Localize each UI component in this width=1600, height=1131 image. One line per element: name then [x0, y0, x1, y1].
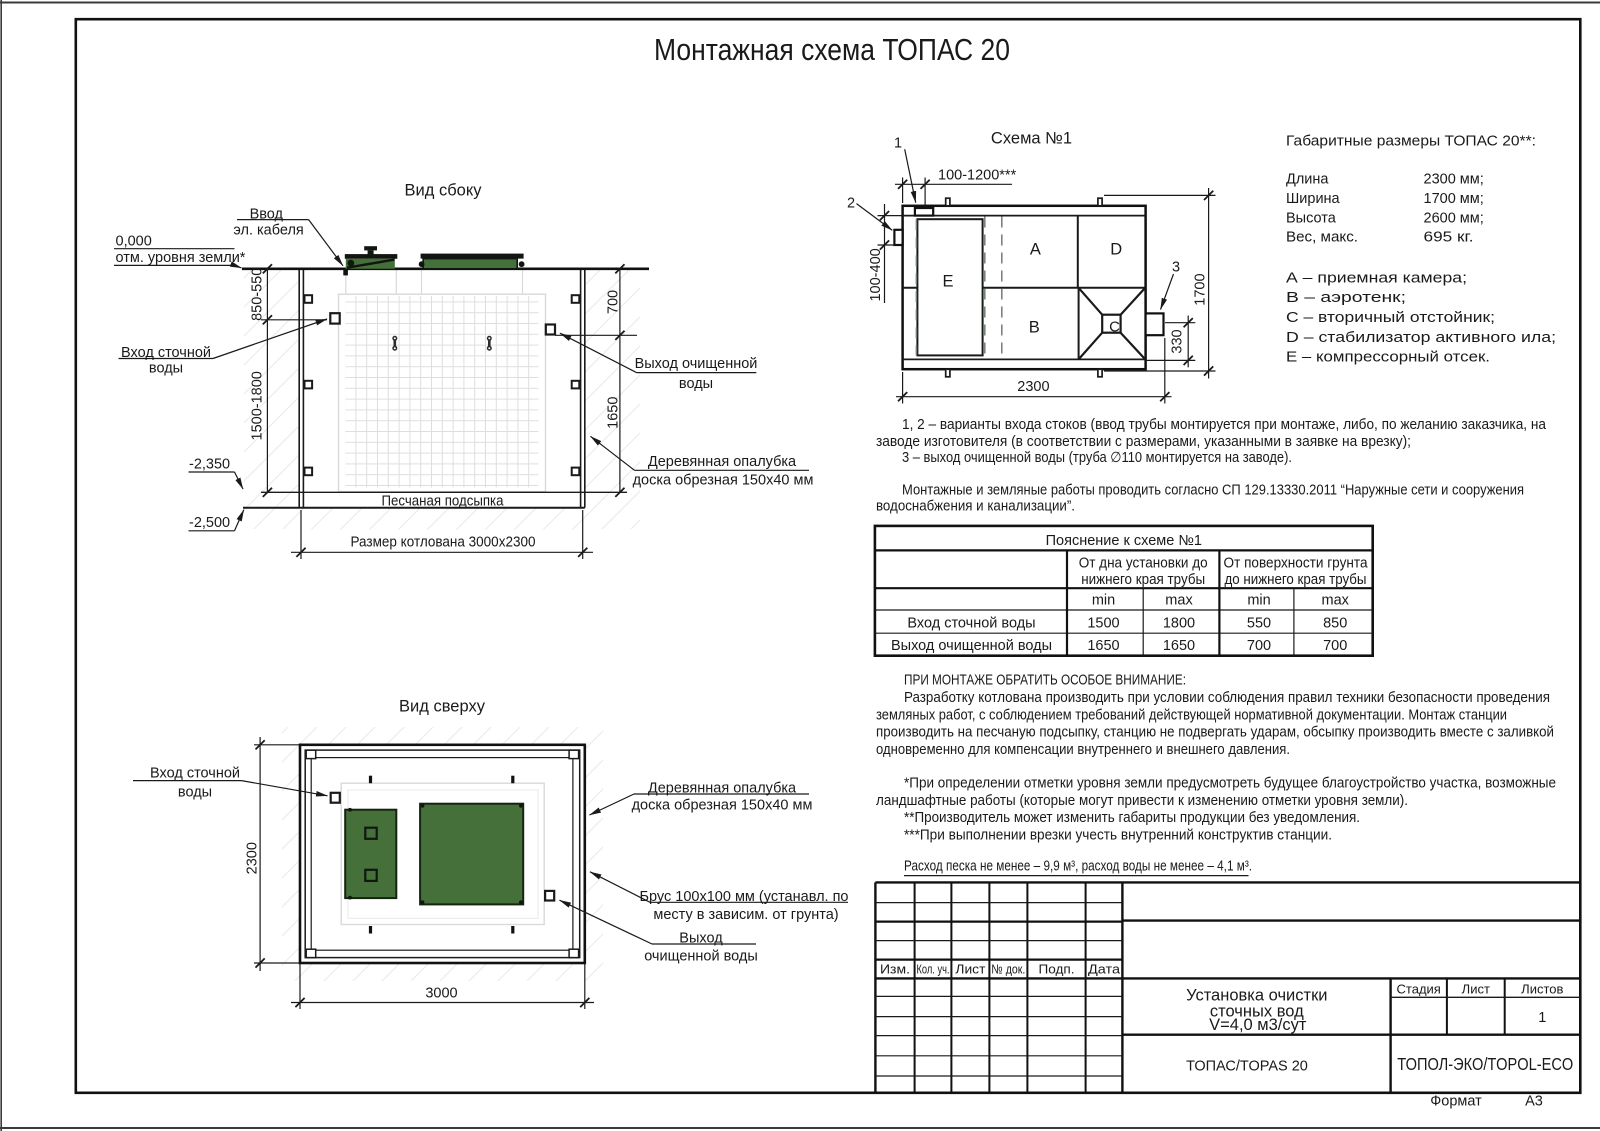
svg-text:2300: 2300: [1017, 379, 1049, 395]
svg-text:заводе изготовителя (в соответ: заводе изготовителя (в соответствии с ра…: [876, 434, 1411, 450]
svg-text:производить на песчаную подсып: производить на песчаную подсыпку, станци…: [876, 725, 1554, 741]
svg-text:2600 мм;: 2600 мм;: [1424, 210, 1484, 226]
svg-text:2300: 2300: [245, 842, 261, 874]
svg-text:850-550: 850-550: [250, 268, 266, 321]
svg-text:Высота: Высота: [1286, 210, 1337, 226]
svg-text:1500-1800: 1500-1800: [250, 371, 266, 440]
svg-text:Вид сверху: Вид сверху: [399, 698, 486, 716]
svg-text:Подп.: Подп.: [1039, 962, 1075, 977]
svg-text:Песчаная подсыпка: Песчаная подсыпка: [382, 493, 505, 509]
svg-text:Е – компрессорный отсек.: Е – компрессорный отсек.: [1286, 350, 1490, 366]
svg-text:3000: 3000: [425, 986, 457, 1002]
svg-text:Вход сточной воды: Вход сточной воды: [907, 616, 1035, 632]
svg-text:-2,500: -2,500: [189, 515, 230, 531]
svg-text:Размер котлована 3000х2300: Размер котлована 3000х2300: [351, 534, 536, 550]
svg-text:Деревянная опалубка: Деревянная опалубка: [648, 454, 797, 470]
svg-text:А3: А3: [1525, 1094, 1543, 1110]
svg-text:Листов: Листов: [1521, 981, 1563, 996]
svg-text:доска обрезная 150х40 мм: доска обрезная 150х40 мм: [633, 472, 814, 488]
svg-text:3 – выход очищенной воды (труб: 3 – выход очищенной воды (труба ∅110 мон…: [902, 450, 1292, 466]
svg-text:3: 3: [1172, 260, 1180, 276]
svg-text:min: min: [1092, 593, 1115, 609]
svg-text:до нижнего края трубы: до нижнего края трубы: [1225, 572, 1367, 588]
svg-text:воды: воды: [149, 361, 183, 377]
svg-text:От поверхности грунта: От поверхности грунта: [1224, 555, 1369, 571]
svg-text:ландшафтные работы (которые мо: ландшафтные работы (которые могут привес…: [876, 793, 1408, 809]
svg-text:Изм.: Изм.: [880, 962, 910, 977]
svg-text:*При определении отметки уровн: *При определении отметки уровня земли пр…: [904, 776, 1556, 792]
svg-text:ТОПАС/TOPAS 20: ТОПАС/TOPAS 20: [1186, 1059, 1308, 1075]
svg-text:Выход очищенной: Выход очищенной: [635, 356, 758, 372]
svg-text:**Производитель может изменить: **Производитель может изменить габариты …: [904, 810, 1360, 826]
svg-text:Габаритные размеры ТОПАС 20**:: Габаритные размеры ТОПАС 20**:: [1286, 133, 1536, 149]
svg-text:земляных работ, с соблюдением: земляных работ, с соблюдением требований…: [876, 707, 1507, 723]
svg-text:100-1200***: 100-1200***: [938, 168, 1017, 184]
svg-text:1: 1: [1538, 1010, 1546, 1026]
svg-text:B: B: [1029, 319, 1040, 337]
svg-text:C: C: [1109, 318, 1120, 335]
svg-text:Лист: Лист: [955, 962, 985, 977]
svg-text:От дна установки до: От дна установки до: [1079, 555, 1208, 571]
svg-text:1700: 1700: [1193, 273, 1209, 305]
svg-text:Длина: Длина: [1286, 171, 1329, 187]
svg-text:доска обрезная 150х40 мм: доска обрезная 150х40 мм: [632, 797, 813, 813]
svg-text:Схема №1: Схема №1: [991, 130, 1072, 148]
svg-text:месту в зависим. от грунта): месту в зависим. от грунта): [653, 907, 838, 923]
svg-text:Вход сточной: Вход сточной: [150, 766, 240, 782]
svg-text:воды: воды: [178, 785, 212, 801]
svg-text:-2,350: -2,350: [189, 456, 230, 472]
svg-text:отм. уровня земли*: отм. уровня земли*: [116, 250, 246, 266]
svg-text:С – вторичный отстойник;: С – вторичный отстойник;: [1286, 310, 1495, 326]
svg-text:1650: 1650: [1087, 638, 1119, 654]
svg-text:Монтажная схема ТОПАС 20: Монтажная схема ТОПАС 20: [654, 32, 1010, 67]
svg-text:A: A: [1030, 240, 1041, 258]
svg-text:водоснабжения и канализации”.: водоснабжения и канализации”.: [876, 499, 1075, 515]
svg-text:D: D: [1110, 240, 1122, 258]
svg-text:550: 550: [1247, 616, 1271, 632]
svg-text:№ док.: № док.: [991, 962, 1025, 977]
svg-text:D – стабилизатор активного ила: D – стабилизатор активного ила;: [1286, 330, 1556, 346]
svg-text:воды: воды: [679, 376, 713, 392]
svg-text:одновременно для компенсации в: одновременно для компенсации внутреннего…: [876, 742, 1290, 758]
svg-text:ТОПОЛ-ЭКО/TOPOL-ECO: ТОПОЛ-ЭКО/TOPOL-ECO: [1397, 1054, 1573, 1074]
svg-text:Ширина: Ширина: [1286, 191, 1341, 207]
svg-text:А – приемная камера;: А – приемная камера;: [1286, 270, 1467, 286]
svg-text:Формат: Формат: [1430, 1094, 1482, 1110]
svg-text:2: 2: [847, 196, 855, 212]
svg-text:Кол. уч.: Кол. уч.: [917, 962, 950, 977]
svg-text:Монтажные и земляные работы пр: Монтажные и земляные работы проводить со…: [902, 482, 1524, 498]
svg-text:1650: 1650: [1163, 638, 1195, 654]
svg-text:1800: 1800: [1163, 616, 1195, 632]
svg-text:***При выполнении врезки учест: ***При выполнении врезки учесть внутренн…: [904, 827, 1332, 843]
svg-text:1, 2 – варианты входа стоков: 1, 2 – варианты входа стоков (ввод трубы…: [902, 417, 1547, 433]
svg-text:695 кг.: 695 кг.: [1424, 230, 1474, 246]
svg-text:max: max: [1321, 593, 1349, 609]
svg-text:В – аэротенк;: В – аэротенк;: [1286, 290, 1406, 306]
svg-text:E: E: [942, 272, 953, 290]
svg-text:min: min: [1247, 593, 1270, 609]
svg-text:нижнего края трубы: нижнего края трубы: [1081, 572, 1205, 588]
svg-text:700: 700: [1323, 638, 1347, 654]
svg-text:ПРИ МОНТАЖЕ ОБРАТИТЬ ОСОБОЕ ВН: ПРИ МОНТАЖЕ ОБРАТИТЬ ОСОБОЕ ВНИМАНИЕ:: [904, 673, 1186, 689]
svg-text:1500: 1500: [1087, 616, 1119, 632]
svg-text:эл. кабеля: эл. кабеля: [233, 223, 303, 239]
svg-text:Вес, макс.: Вес, макс.: [1286, 230, 1358, 246]
svg-text:Лист: Лист: [1462, 981, 1490, 996]
svg-text:330: 330: [1170, 329, 1186, 353]
svg-text:max: max: [1165, 593, 1193, 609]
svg-text:Разработку котлована производи: Разработку котлована производить при усл…: [904, 690, 1550, 706]
svg-text:700: 700: [606, 290, 622, 314]
svg-text:0,000: 0,000: [116, 234, 152, 250]
svg-text:1: 1: [894, 136, 902, 152]
svg-text:1650: 1650: [606, 397, 622, 429]
svg-text:Пояснение к схеме №1: Пояснение к схеме №1: [1046, 533, 1202, 549]
svg-text:Вид сбоку: Вид сбоку: [405, 182, 483, 200]
svg-text:Расход песка не менее – 9,9 м³: Расход песка не менее – 9,9 м³, расход в…: [904, 858, 1252, 874]
svg-text:850: 850: [1323, 616, 1347, 632]
svg-text:2300 мм;: 2300 мм;: [1424, 171, 1484, 187]
svg-text:Стадия: Стадия: [1397, 981, 1441, 996]
svg-text:100-400: 100-400: [868, 248, 884, 301]
svg-text:1700 мм;: 1700 мм;: [1424, 191, 1484, 207]
svg-text:Выход очищенной воды: Выход очищенной воды: [891, 638, 1052, 654]
svg-text:Дата: Дата: [1088, 962, 1121, 977]
svg-text:700: 700: [1247, 638, 1271, 654]
svg-text:V=4,0 м3/сут: V=4,0 м3/сут: [1209, 1016, 1307, 1034]
svg-text:очищенной воды: очищенной воды: [644, 949, 758, 965]
